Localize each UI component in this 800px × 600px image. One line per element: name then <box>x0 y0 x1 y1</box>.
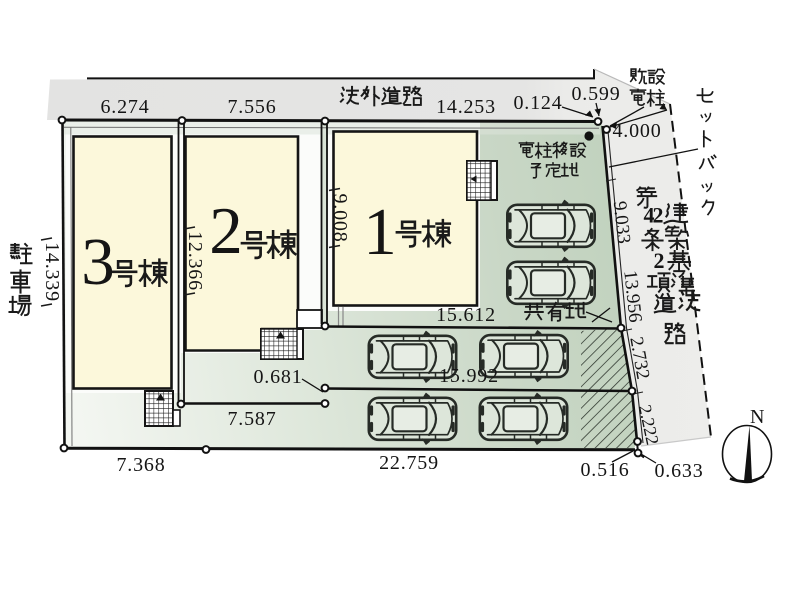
svg-text:7.556: 7.556 <box>228 96 277 118</box>
svg-text:9.008: 9.008 <box>329 194 351 243</box>
svg-text:14.253: 14.253 <box>436 96 496 118</box>
svg-text:42: 42 <box>644 203 664 228</box>
svg-text:2: 2 <box>209 194 243 268</box>
svg-text:12.366: 12.366 <box>184 231 206 291</box>
svg-text:0.633: 0.633 <box>655 460 704 482</box>
svg-text:2: 2 <box>654 248 665 273</box>
svg-text:N: N <box>750 406 764 428</box>
svg-text:6.274: 6.274 <box>101 96 150 118</box>
svg-text:14.339: 14.339 <box>41 242 63 302</box>
svg-text:3: 3 <box>81 225 115 299</box>
svg-text:0.124: 0.124 <box>514 92 563 114</box>
svg-text:0.681: 0.681 <box>254 366 303 388</box>
svg-text:1: 1 <box>363 195 397 269</box>
svg-text:15.612: 15.612 <box>436 304 496 326</box>
svg-text:7.368: 7.368 <box>117 454 166 476</box>
svg-text:15.992: 15.992 <box>439 365 499 387</box>
svg-text:4.000: 4.000 <box>613 120 662 142</box>
svg-text:0.516: 0.516 <box>581 459 630 481</box>
svg-text:7.587: 7.587 <box>228 408 277 430</box>
svg-text:9.033: 9.033 <box>609 200 634 245</box>
svg-text:22.759: 22.759 <box>379 452 439 474</box>
svg-text:0.599: 0.599 <box>572 83 621 105</box>
